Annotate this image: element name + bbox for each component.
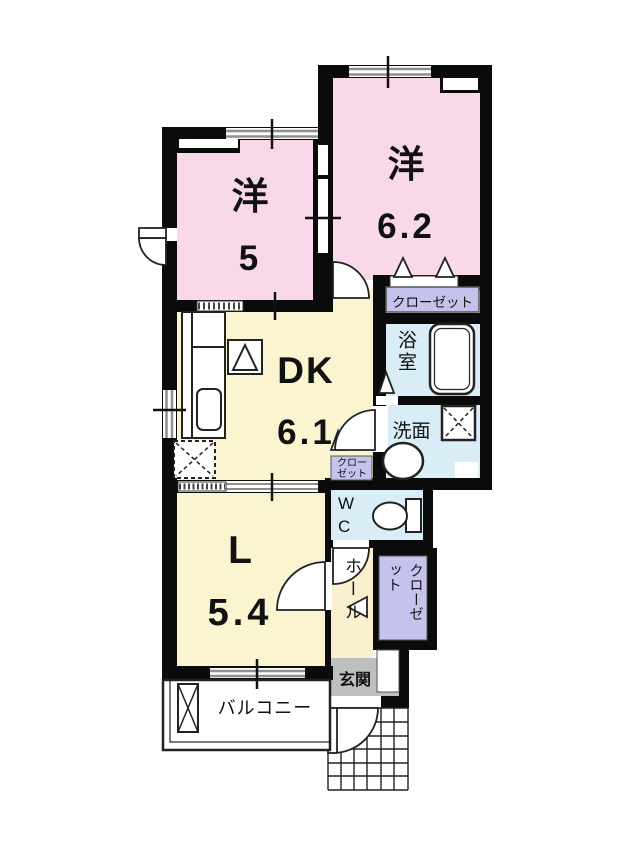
label-room-western1: 洋 5 (182, 158, 318, 300)
label-closet-dk: クローゼット (333, 458, 371, 480)
bathtub (430, 324, 474, 394)
toilet (373, 499, 421, 532)
label-balcony: バルコニー (206, 694, 324, 720)
room-name: L (170, 530, 310, 572)
label-washroom: 洗面 (384, 416, 439, 443)
room-size: 5.4 (170, 590, 310, 636)
label-room-dk: DK 6.1 (244, 332, 368, 474)
refrigerator-space (174, 441, 215, 478)
label-closet-hall: クローゼット (382, 563, 426, 627)
label-hall: ホール (341, 557, 361, 655)
kitchen-sink (197, 389, 221, 430)
washing-machine-space (442, 406, 475, 440)
room-name: 洋 (182, 176, 318, 218)
label-wc: WC (338, 492, 362, 538)
room-size: 6.2 (338, 204, 474, 250)
kitchen-counter (182, 312, 225, 438)
room-size: 6.1 (244, 410, 368, 456)
room-size: 5 (182, 236, 318, 282)
room-name: 洋 (338, 144, 474, 186)
label-room-western2: 洋 6.2 (338, 126, 474, 268)
washbasin (383, 443, 423, 479)
label-room-living: L 5.4 (170, 512, 310, 654)
room-name: DK (244, 350, 368, 392)
door-exterior-left (139, 238, 166, 265)
label-entrance: 玄関 (331, 666, 379, 690)
door-entrance (333, 708, 378, 753)
label-bath: 浴室 (392, 330, 418, 374)
floorplan: 洋 5 洋 6.2 DK 6.1 L 5.4 クローゼット 浴室 洗面 クローゼ… (0, 0, 640, 853)
label-closet-main: クローゼット (387, 291, 478, 311)
